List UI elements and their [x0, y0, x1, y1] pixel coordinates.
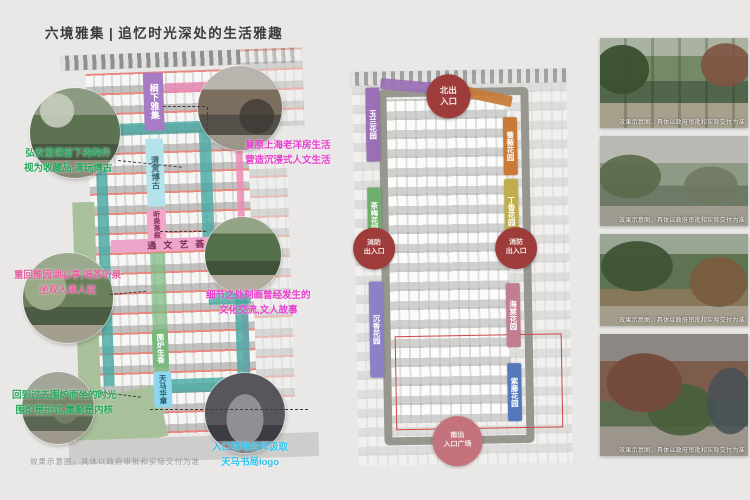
photo-thumbnail-1: 效果示意图，具体以政府审批和实际交付为准 [600, 38, 748, 128]
entrance-fire-west-line1: 消防 [367, 240, 381, 249]
annotation-teahouse-line2: 坐观人来人往 [14, 283, 121, 298]
photo-caption: 效果示意图，具体以政府审批和实际交付为准 [619, 117, 745, 126]
annotation-fireside: 回到过去围炉而坐的时光 围炉是形式,集聚是内核 [12, 388, 117, 418]
zone-label-weilu-shengxiang: 围炉生香 [152, 329, 169, 368]
garden-label-haitang: 海棠花园 [506, 283, 521, 347]
entrance-fire-west-line2: 出入口 [364, 248, 385, 257]
photo-caption: 效果示意图，具体以政府审批和实际交付为准 [619, 315, 745, 324]
leader-line [150, 409, 308, 410]
page-title-subtitle: 追忆时光深处的生活雅趣 [118, 26, 283, 41]
annotation-paving-line1: 入口铺地纹样汲取 [212, 440, 288, 455]
leader-line [163, 106, 205, 107]
annotation-shanghai: 复原上海老洋房生活 营造沉浸式人文生活 [245, 138, 331, 168]
entrance-south-line2: 入口广场 [443, 441, 471, 450]
annotation-heritage: 弘安里保留下的构件 视为收藏品,清玩博古 [24, 146, 112, 176]
garden-label-qiangwei: 蔷薇花园 [503, 117, 518, 175]
annotation-paving: 入口铺地纹样汲取 天马书局logo [212, 440, 288, 470]
annotation-teahouse: 重回豫园湖心亭,喝茶听泉 坐观人来人往 [14, 268, 121, 298]
photo-thumbnail-2: 效果示意图，具体以政府审批和实际交付为准 [600, 136, 748, 226]
presentation-slide: 六境雅集|追忆时光深处的生活雅趣 榈下雅集 清赏博古 听泉茶叙 通文艺荟 围炉生… [0, 0, 750, 500]
annotation-shanghai-line1: 复原上海老洋房生活 [245, 138, 331, 153]
entrance-fire-east-line2: 出入口 [506, 248, 527, 257]
photo-thumbnail-4: 效果示意图，具体以政府审批和实际交付为准 [600, 334, 748, 456]
garden-label-chenxiang: 沉香花园 [369, 281, 385, 377]
annotation-shanghai-line2: 营造沉浸式人文生活 [245, 153, 331, 168]
zone-label-tingquan-chaxu: 听泉茶叙 [147, 209, 167, 240]
annotation-teahouse-line1: 重回豫园湖心亭,喝茶听泉 [14, 268, 121, 283]
zone-label-tianma-huazhang: 天马华章 [153, 371, 172, 408]
leader-line [160, 231, 206, 232]
entrance-south-line1: 南出 [450, 432, 464, 441]
photo-caption: 效果示意图，具体以政府审批和实际交付为准 [619, 445, 745, 454]
entrance-north-line1: 北出 [440, 86, 457, 97]
garden-label-ziteng: 紫藤花园 [507, 363, 522, 421]
page-title-primary: 六境雅集 [45, 26, 105, 41]
annotation-culture-line2: 文化交流,文人故事 [206, 303, 311, 318]
annotation-fireside-line1: 回到过去围炉而坐的时光 [12, 388, 117, 403]
photo-caption: 效果示意图，具体以政府审批和实际交付为准 [619, 215, 745, 224]
zone-label-qingshang-bogu: 清赏博古 [145, 138, 165, 207]
annotation-heritage-line1: 弘安里保留下的构件 [24, 146, 112, 161]
title-separator: | [109, 26, 114, 41]
photo-inset-alley [205, 217, 281, 293]
annotation-heritage-line2: 视为收藏品,清玩博古 [24, 161, 112, 176]
zone-label-linxia-yaji: 榈下雅集 [143, 72, 165, 131]
footer-disclaimer: 效果示意图，具体以政府审批和实际交付为准 [30, 456, 200, 467]
annotation-culture: 细节之处刻画曾经发生的 文化交流,文人故事 [206, 288, 311, 318]
annotation-paving-line2: 天马书局logo [212, 455, 288, 470]
middle-circulation-plan: 玉兰花园 茶梅花园 沉香花园 蔷薇花园 丁香花园 海棠花园 紫藤花园 北出 入口… [350, 66, 575, 472]
photo-thumbnail-3: 效果示意图，具体以政府审批和实际交付为准 [600, 234, 748, 326]
phase-outline-rect [395, 333, 564, 430]
annotation-fireside-line2: 围炉是形式,集聚是内核 [12, 403, 117, 418]
leader-line [207, 107, 208, 131]
entrance-north-line2: 入口 [440, 96, 457, 107]
annotation-culture-line1: 细节之处刻画曾经发生的 [206, 288, 311, 303]
entrance-fire-east-line1: 消防 [509, 239, 523, 248]
garden-label-yulan: 玉兰花园 [365, 87, 380, 161]
page-title: 六境雅集|追忆时光深处的生活雅趣 [45, 22, 283, 42]
